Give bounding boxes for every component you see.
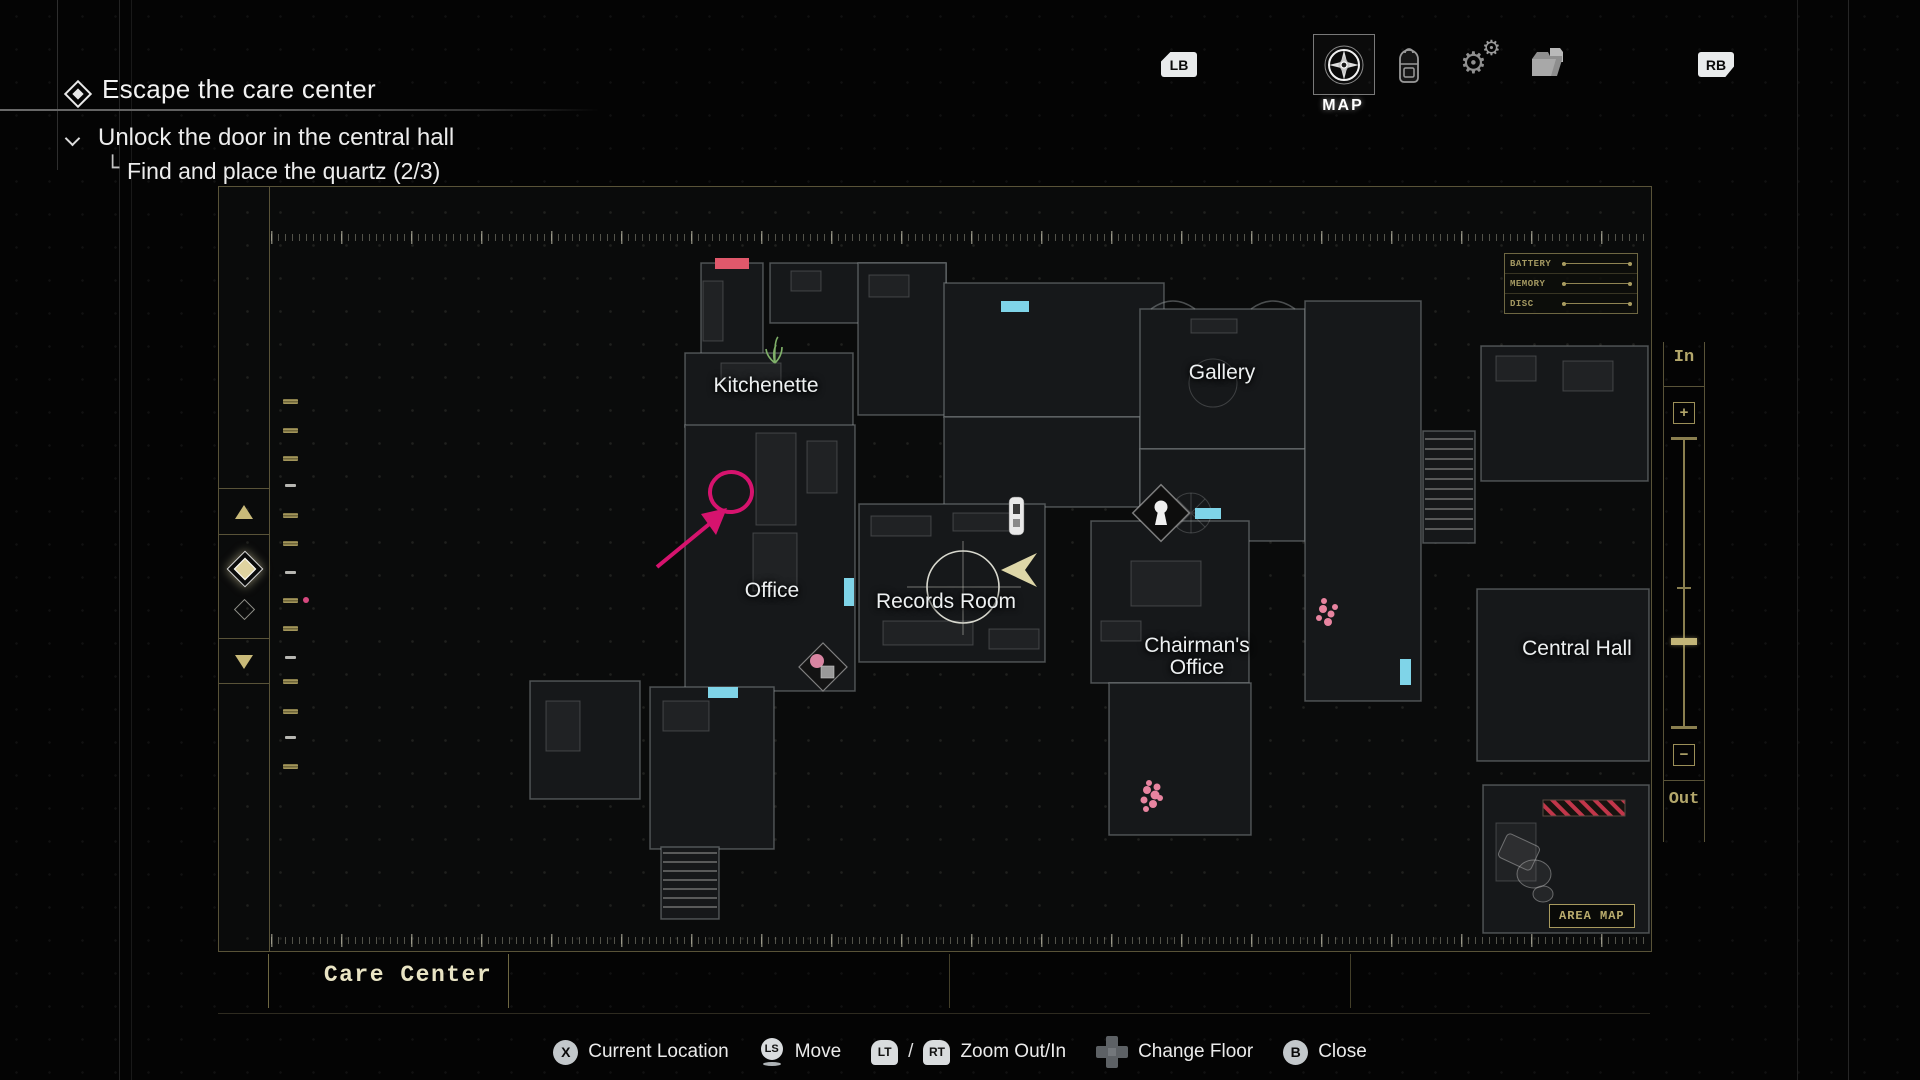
hint-zoom: LT / RT Zoom Out/In: [871, 1040, 1066, 1065]
rt-button-icon: RT: [923, 1040, 950, 1065]
room-label-kitchenette: Kitchenette: [713, 374, 818, 398]
objective-diamond-icon: [64, 80, 92, 108]
area-map-badge: AREA MAP: [1549, 904, 1635, 928]
map-screen: Escape the care center Unlock the door i…: [0, 0, 1920, 1080]
status-panel: BATTERY MEMORY DISC: [1504, 253, 1638, 314]
slash-separator: /: [908, 1041, 913, 1063]
tab-map[interactable]: [1313, 34, 1375, 95]
key-item-door-icon: [1009, 497, 1024, 535]
hint-label: Current Location: [588, 1041, 728, 1063]
memory-bar: [1562, 283, 1632, 284]
area-name-strip: Care Center: [218, 951, 1650, 1012]
decor-line: [57, 0, 58, 170]
floor-plan: [219, 187, 1651, 951]
decor-line: [1797, 0, 1798, 1080]
left-stick-icon: LS: [759, 1038, 785, 1066]
zoom-control: In + − Out: [1663, 342, 1705, 842]
hint-close: B Close: [1283, 1040, 1367, 1065]
dpad-icon: [1096, 1036, 1128, 1068]
gear-icon: ⚙: [1482, 36, 1501, 60]
tab-inventory[interactable]: [1392, 42, 1426, 93]
compass-icon: [1321, 42, 1367, 88]
lt-button-icon: LT: [871, 1040, 898, 1065]
sub-objective-branch-glyph: └: [106, 156, 119, 181]
zoom-slider-thumb[interactable]: [1671, 638, 1697, 645]
x-button-icon: X: [553, 1040, 578, 1065]
room-label-central-hall: Central Hall: [1522, 637, 1632, 661]
tab-files[interactable]: [1526, 42, 1570, 89]
zoom-out-label: Out: [1664, 790, 1704, 809]
objective-text: Unlock the door in the central hall: [98, 124, 454, 152]
b-button-icon: B: [1283, 1040, 1308, 1065]
area-name: Care Center: [308, 962, 508, 988]
hint-label: Change Floor: [1138, 1041, 1253, 1063]
zoom-track-mid-tick: [1677, 587, 1691, 589]
chevron-down-icon: [66, 131, 80, 145]
room-label-chairmans-office: Chairman's Office: [1122, 635, 1272, 679]
room-label-records-room: Records Room: [876, 590, 1016, 614]
room-label-office: Office: [745, 579, 799, 603]
hint-label: Move: [795, 1041, 841, 1063]
hint-move: LS Move: [759, 1038, 841, 1066]
zoom-track[interactable]: [1683, 437, 1685, 728]
tab-crafting[interactable]: ⚙ ⚙: [1460, 36, 1508, 84]
zoom-minus-button[interactable]: −: [1673, 744, 1695, 766]
memory-label: MEMORY: [1510, 279, 1562, 289]
room-label-gallery: Gallery: [1189, 361, 1256, 385]
hint-bar: X Current Location LS Move LT / RT Zoom …: [0, 1036, 1920, 1068]
tab-map-label: MAP: [1305, 97, 1381, 115]
zoom-track-bottom: [1671, 726, 1697, 729]
hint-label: Close: [1318, 1041, 1367, 1063]
zoom-in-label: In: [1664, 348, 1704, 367]
disc-bar: [1562, 303, 1632, 304]
hint-current-location: X Current Location: [553, 1040, 728, 1065]
title-divider: [0, 109, 600, 111]
hint-change-floor: Change Floor: [1096, 1036, 1253, 1068]
backpack-icon: [1392, 42, 1426, 88]
lb-button-badge: LB: [1161, 52, 1197, 77]
battery-bar: [1562, 263, 1632, 264]
rb-button-badge: RB: [1698, 52, 1734, 77]
disc-label: DISC: [1510, 299, 1562, 309]
room-outlines: [530, 263, 1649, 933]
folder-icon: [1526, 42, 1570, 84]
battery-label: BATTERY: [1510, 259, 1562, 269]
hazard-stripe-marker: [1543, 800, 1625, 816]
zoom-plus-button[interactable]: +: [1673, 402, 1695, 424]
door-marker-red: [715, 258, 749, 269]
sub-objective-text: Find and place the quartz (2/3): [127, 158, 440, 185]
decor-line: [218, 1013, 1650, 1014]
decor-line: [1848, 0, 1849, 1080]
map-panel[interactable]: Kitchenette Gallery Office Records Room …: [218, 186, 1652, 952]
room-central-hall: [1477, 589, 1649, 761]
hint-label: Zoom Out/In: [960, 1041, 1066, 1063]
mission-title: Escape the care center: [102, 74, 376, 105]
